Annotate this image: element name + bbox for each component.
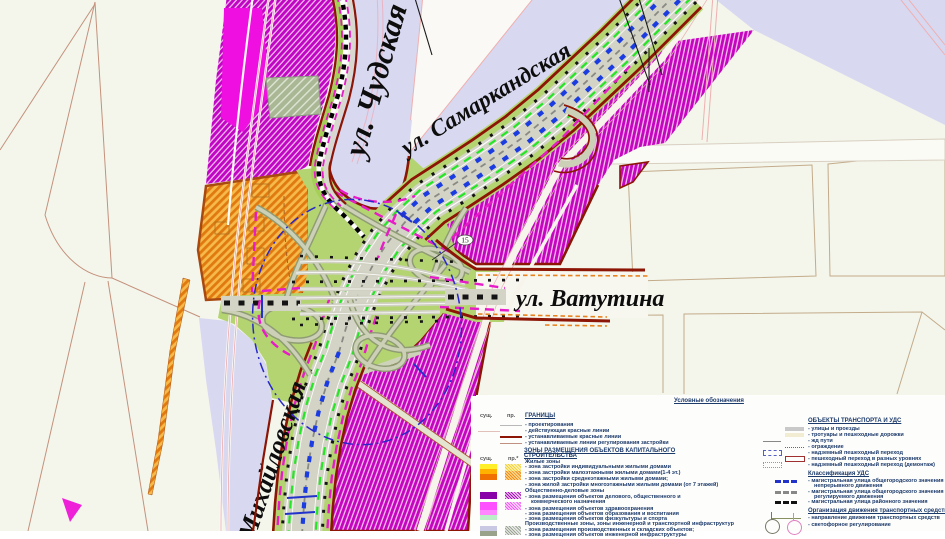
svg-text:15: 15 [461,236,469,245]
svg-text:ул. Ватутина: ул. Ватутина [513,286,664,312]
